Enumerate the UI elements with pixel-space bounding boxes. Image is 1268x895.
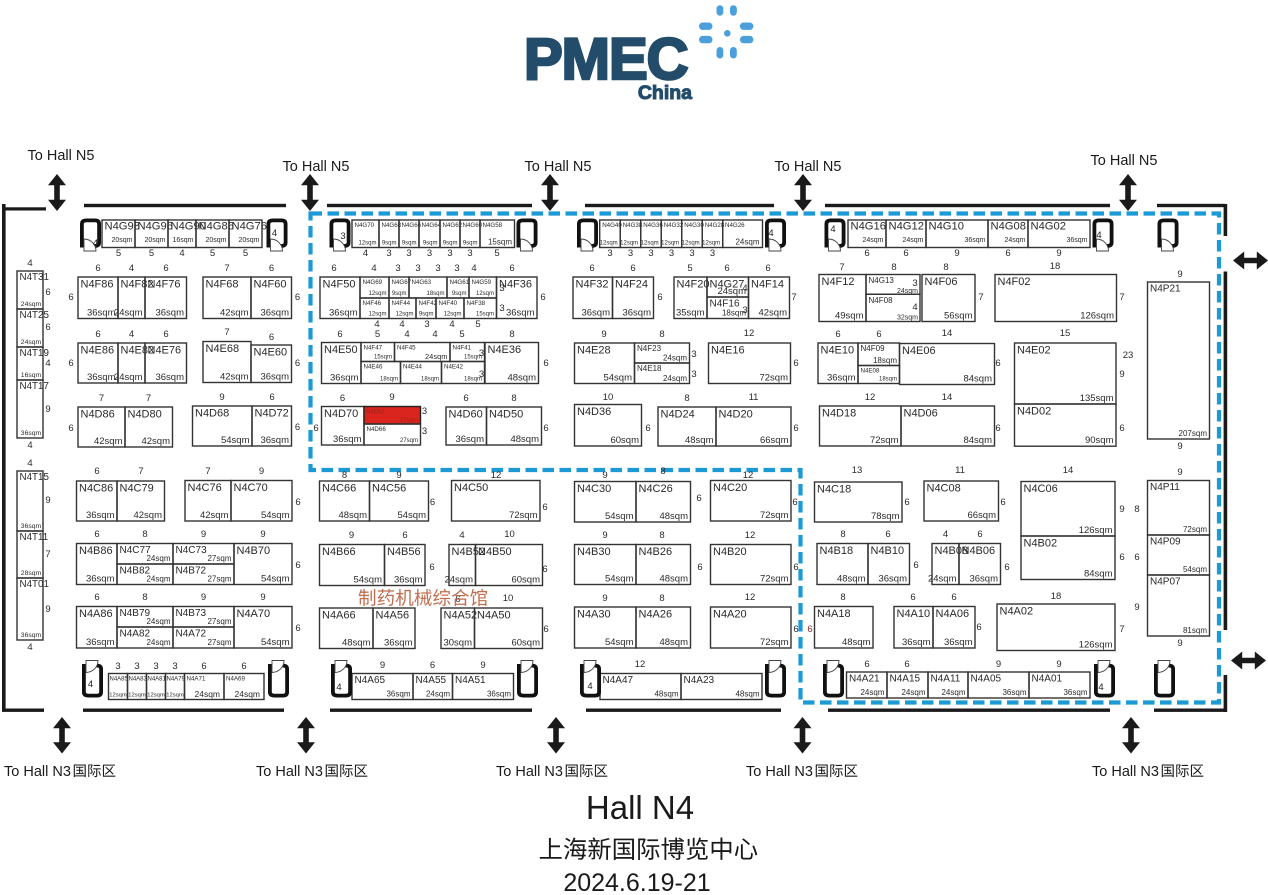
svg-text:N4E42: N4E42 <box>444 363 463 370</box>
svg-text:24sqm: 24sqm <box>862 237 883 244</box>
svg-text:4: 4 <box>272 228 277 239</box>
svg-text:12sqm: 12sqm <box>358 241 376 247</box>
svg-text:9: 9 <box>602 593 607 604</box>
svg-text:N4F08: N4F08 <box>869 296 894 305</box>
svg-text:54sqm: 54sqm <box>1183 565 1207 574</box>
svg-text:8: 8 <box>660 466 665 477</box>
svg-text:24sqm: 24sqm <box>114 372 143 383</box>
svg-text:6: 6 <box>269 332 274 343</box>
svg-text:N4D66: N4D66 <box>367 426 387 433</box>
svg-text:N4C73: N4C73 <box>176 545 208 556</box>
svg-text:N4G59: N4G59 <box>472 279 492 286</box>
svg-text:6: 6 <box>543 423 548 434</box>
svg-text:9: 9 <box>1119 369 1124 380</box>
svg-text:N4A20: N4A20 <box>713 609 747 621</box>
svg-text:27sqm: 27sqm <box>400 438 418 444</box>
svg-text:6: 6 <box>1119 423 1124 434</box>
svg-text:N4T25: N4T25 <box>20 310 50 321</box>
svg-text:24sqm: 24sqm <box>902 237 923 244</box>
svg-text:To Hall N3: To Hall N3 <box>256 764 323 780</box>
svg-text:24sqm: 24sqm <box>444 575 473 586</box>
svg-text:6: 6 <box>295 497 300 508</box>
svg-text:6: 6 <box>68 358 73 369</box>
svg-text:6: 6 <box>68 292 73 303</box>
svg-text:N4F12: N4F12 <box>822 276 855 288</box>
svg-text:N4A05: N4A05 <box>971 674 1002 685</box>
svg-text:N4B72: N4B72 <box>176 566 207 577</box>
svg-text:4: 4 <box>943 529 948 540</box>
svg-text:6: 6 <box>1004 562 1009 573</box>
svg-text:6: 6 <box>1119 552 1124 563</box>
svg-text:N4A51: N4A51 <box>455 675 486 686</box>
svg-text:12sqm: 12sqm <box>368 312 386 318</box>
svg-text:12sqm: 12sqm <box>641 241 659 247</box>
svg-text:N4F40: N4F40 <box>439 300 458 307</box>
svg-text:54sqm: 54sqm <box>605 511 634 522</box>
svg-text:54sqm: 54sqm <box>221 435 250 446</box>
svg-text:54sqm: 54sqm <box>261 510 290 521</box>
svg-text:10: 10 <box>504 529 515 540</box>
svg-text:27sqm: 27sqm <box>207 554 231 563</box>
svg-text:9sqm: 9sqm <box>402 241 417 247</box>
svg-text:N4A55: N4A55 <box>416 675 447 686</box>
svg-text:12: 12 <box>745 530 756 541</box>
svg-text:N4C08: N4C08 <box>927 483 961 495</box>
svg-text:24sqm: 24sqm <box>146 554 170 563</box>
svg-text:48sqm: 48sqm <box>659 574 688 585</box>
svg-text:3: 3 <box>172 661 177 672</box>
svg-text:28sqm: 28sqm <box>21 570 42 577</box>
svg-text:24sqm: 24sqm <box>941 688 965 697</box>
svg-text:48sqm: 48sqm <box>735 690 759 699</box>
svg-text:3: 3 <box>499 283 504 294</box>
svg-text:9: 9 <box>45 495 50 506</box>
svg-text:N4E06: N4E06 <box>902 345 936 357</box>
svg-text:5: 5 <box>494 248 499 259</box>
svg-text:72sqm: 72sqm <box>759 373 788 384</box>
svg-text:4: 4 <box>179 248 184 259</box>
svg-text:36sqm: 36sqm <box>260 308 289 319</box>
svg-text:N4C20: N4C20 <box>713 482 747 494</box>
svg-text:4: 4 <box>912 302 917 313</box>
svg-text:6: 6 <box>402 530 407 541</box>
svg-text:N4E46: N4E46 <box>364 363 383 370</box>
svg-text:9sqm: 9sqm <box>443 241 458 247</box>
svg-text:36sqm: 36sqm <box>86 510 115 521</box>
svg-text:24sqm: 24sqm <box>146 617 170 626</box>
svg-text:N4C18: N4C18 <box>817 484 851 496</box>
svg-text:7: 7 <box>1119 624 1124 635</box>
svg-text:N4E76: N4E76 <box>148 345 182 357</box>
svg-text:N4E36: N4E36 <box>488 344 522 356</box>
svg-text:9: 9 <box>349 530 354 541</box>
svg-text:12: 12 <box>865 392 876 403</box>
svg-text:12sqm: 12sqm <box>109 693 127 699</box>
svg-text:7: 7 <box>791 292 796 303</box>
svg-text:36sqm: 36sqm <box>21 430 42 437</box>
svg-text:14: 14 <box>1063 465 1074 476</box>
svg-text:4: 4 <box>1096 230 1101 241</box>
svg-text:48sqm: 48sqm <box>342 638 371 649</box>
svg-text:N4C79: N4C79 <box>120 483 154 495</box>
svg-text:N4A71: N4A71 <box>187 676 206 683</box>
svg-text:To Hall N3: To Hall N3 <box>4 764 71 780</box>
svg-text:5: 5 <box>375 329 380 340</box>
svg-text:48sqm: 48sqm <box>842 637 871 648</box>
svg-text:N4A81: N4A81 <box>148 677 167 683</box>
svg-text:84sqm: 84sqm <box>1084 569 1113 580</box>
svg-text:27sqm: 27sqm <box>207 638 231 647</box>
svg-text:N4F38: N4F38 <box>467 300 486 307</box>
svg-text:8: 8 <box>509 329 514 340</box>
svg-text:42sqm: 42sqm <box>220 308 249 319</box>
svg-text:9: 9 <box>602 530 607 541</box>
svg-text:4: 4 <box>830 224 835 235</box>
svg-text:8: 8 <box>840 529 845 540</box>
svg-text:6: 6 <box>913 560 918 571</box>
svg-text:N4A02: N4A02 <box>1000 606 1034 618</box>
svg-text:9: 9 <box>1056 659 1061 670</box>
svg-text:N4B26: N4B26 <box>639 546 673 558</box>
svg-text:49sqm: 49sqm <box>835 311 864 322</box>
svg-text:78sqm: 78sqm <box>871 511 900 522</box>
svg-text:N4G16: N4G16 <box>851 221 886 233</box>
svg-text:9: 9 <box>1177 467 1182 478</box>
svg-text:6: 6 <box>430 660 435 671</box>
svg-text:24sqm: 24sqm <box>663 354 687 363</box>
svg-text:48sqm: 48sqm <box>338 510 367 521</box>
svg-text:48sqm: 48sqm <box>659 511 688 522</box>
svg-text:6: 6 <box>429 562 434 573</box>
svg-text:2024.6.19-21: 2024.6.19-21 <box>563 869 710 895</box>
svg-text:N4D18: N4D18 <box>822 408 856 420</box>
svg-text:To Hall N3: To Hall N3 <box>1092 764 1159 780</box>
svg-text:4: 4 <box>336 682 341 693</box>
svg-text:N4C56: N4C56 <box>372 483 406 495</box>
svg-text:24sqm: 24sqm <box>735 238 759 247</box>
svg-text:6: 6 <box>976 622 981 633</box>
svg-text:N4D24: N4D24 <box>661 409 695 421</box>
svg-text:72sqm: 72sqm <box>760 637 789 648</box>
svg-text:6: 6 <box>94 466 99 477</box>
svg-text:6: 6 <box>509 263 514 274</box>
svg-text:4: 4 <box>432 329 437 340</box>
svg-text:N4F50: N4F50 <box>323 279 356 291</box>
svg-text:36sqm: 36sqm <box>1066 237 1087 244</box>
svg-text:N4B18: N4B18 <box>820 545 854 557</box>
svg-text:N4D68: N4D68 <box>195 408 229 420</box>
svg-text:N4F14: N4F14 <box>751 279 784 291</box>
svg-text:To Hall N5: To Hall N5 <box>283 159 350 175</box>
svg-text:N4A10: N4A10 <box>897 608 931 620</box>
svg-text:3: 3 <box>115 661 120 672</box>
svg-text:6: 6 <box>885 529 890 540</box>
svg-text:N4F45: N4F45 <box>397 344 416 351</box>
svg-text:N4A86: N4A86 <box>79 608 113 620</box>
svg-text:3: 3 <box>454 263 459 274</box>
svg-text:12sqm: 12sqm <box>395 312 413 318</box>
svg-text:4: 4 <box>768 228 773 239</box>
svg-text:To Hall N5: To Hall N5 <box>775 159 842 175</box>
svg-text:6: 6 <box>295 623 300 634</box>
svg-text:4: 4 <box>363 248 368 259</box>
svg-text:Hall N4: Hall N4 <box>586 789 694 826</box>
svg-text:9: 9 <box>1177 441 1182 452</box>
svg-text:6: 6 <box>793 562 798 573</box>
svg-text:N4F20: N4F20 <box>677 279 710 291</box>
svg-text:N4E60: N4E60 <box>254 347 288 359</box>
svg-text:N4A23: N4A23 <box>684 675 715 686</box>
svg-text:N4G36: N4G36 <box>643 222 663 229</box>
svg-text:7: 7 <box>978 292 983 303</box>
svg-text:42sqm: 42sqm <box>758 308 787 319</box>
svg-text:N4G63: N4G63 <box>412 279 432 286</box>
svg-text:36sqm: 36sqm <box>260 372 289 383</box>
svg-text:6: 6 <box>792 497 797 508</box>
svg-text:36sqm: 36sqm <box>487 690 511 699</box>
svg-text:6: 6 <box>765 263 770 274</box>
svg-text:6: 6 <box>864 659 869 670</box>
svg-text:36sqm: 36sqm <box>581 308 610 319</box>
svg-text:36sqm: 36sqm <box>455 434 484 445</box>
svg-text:N4G76: N4G76 <box>232 221 267 233</box>
svg-text:3: 3 <box>689 248 694 259</box>
svg-text:7: 7 <box>146 393 151 404</box>
svg-text:N4A56: N4A56 <box>376 610 410 622</box>
svg-text:N4D06: N4D06 <box>904 408 938 420</box>
svg-text:72sqm: 72sqm <box>509 510 538 521</box>
svg-text:14: 14 <box>942 392 953 403</box>
svg-text:3: 3 <box>691 369 696 380</box>
svg-text:6: 6 <box>645 423 650 434</box>
svg-text:N4D72: N4D72 <box>255 408 289 420</box>
svg-text:3: 3 <box>415 263 420 274</box>
svg-text:N4G10: N4G10 <box>929 221 964 233</box>
svg-text:11: 11 <box>749 392 759 403</box>
svg-text:6: 6 <box>313 423 318 434</box>
svg-text:5: 5 <box>116 248 121 259</box>
svg-text:6: 6 <box>995 358 1000 369</box>
svg-text:9sqm: 9sqm <box>382 241 397 247</box>
svg-text:N4A30: N4A30 <box>577 609 611 621</box>
svg-text:6: 6 <box>835 329 840 340</box>
svg-text:6: 6 <box>903 248 908 259</box>
svg-text:6: 6 <box>95 329 100 340</box>
svg-text:3: 3 <box>153 661 158 672</box>
svg-text:3: 3 <box>395 263 400 274</box>
svg-text:36sqm: 36sqm <box>964 237 985 244</box>
svg-text:6: 6 <box>864 248 869 259</box>
svg-text:N4C50: N4C50 <box>454 482 488 494</box>
svg-text:6: 6 <box>45 322 50 333</box>
svg-text:9: 9 <box>480 660 485 671</box>
svg-text:N4G26: N4G26 <box>725 222 745 229</box>
svg-text:60sqm: 60sqm <box>511 575 540 586</box>
svg-text:N4G13: N4G13 <box>869 276 895 285</box>
svg-text:15sqm: 15sqm <box>476 312 494 318</box>
svg-text:7: 7 <box>224 327 229 338</box>
svg-text:6: 6 <box>542 564 547 575</box>
svg-text:N4E28: N4E28 <box>577 345 611 357</box>
svg-text:N4F02: N4F02 <box>998 276 1031 288</box>
svg-text:N4C06: N4C06 <box>1024 483 1058 495</box>
svg-text:4: 4 <box>93 238 98 249</box>
svg-text:36sqm: 36sqm <box>21 523 42 530</box>
svg-text:72sqm: 72sqm <box>760 574 789 585</box>
svg-text:9: 9 <box>259 466 264 477</box>
svg-text:6: 6 <box>807 624 812 635</box>
svg-text:6: 6 <box>696 493 701 504</box>
svg-text:N4A79: N4A79 <box>167 677 186 683</box>
svg-text:6: 6 <box>430 497 435 508</box>
svg-text:12sqm: 12sqm <box>476 291 494 297</box>
svg-text:6: 6 <box>904 497 909 508</box>
svg-text:81sqm: 81sqm <box>1183 626 1207 635</box>
svg-text:N4F42: N4F42 <box>419 300 438 307</box>
svg-text:7: 7 <box>839 262 844 273</box>
svg-text:6: 6 <box>793 624 798 635</box>
svg-text:3: 3 <box>422 406 427 417</box>
svg-text:N4E44: N4E44 <box>403 363 422 370</box>
svg-text:48sqm: 48sqm <box>510 434 539 445</box>
svg-text:36sqm: 36sqm <box>384 638 413 649</box>
svg-text:126sqm: 126sqm <box>1079 640 1113 651</box>
svg-text:N4A06: N4A06 <box>936 608 970 620</box>
svg-text:4: 4 <box>27 440 32 451</box>
svg-text:N4T31: N4T31 <box>20 272 49 283</box>
svg-text:3: 3 <box>386 248 391 259</box>
svg-text:4: 4 <box>27 642 32 653</box>
svg-text:N4F47: N4F47 <box>364 344 383 351</box>
svg-text:7: 7 <box>99 393 104 404</box>
svg-text:N4P09: N4P09 <box>1150 537 1181 548</box>
svg-text:12sqm: 12sqm <box>368 291 386 297</box>
svg-text:9: 9 <box>396 470 401 481</box>
svg-text:42sqm: 42sqm <box>220 372 249 383</box>
svg-text:10: 10 <box>603 392 614 403</box>
svg-text:6: 6 <box>68 423 73 434</box>
svg-text:6: 6 <box>793 358 798 369</box>
svg-text:6: 6 <box>876 329 881 340</box>
svg-text:36sqm: 36sqm <box>260 435 289 446</box>
svg-text:4: 4 <box>129 329 134 340</box>
svg-text:32sqm: 32sqm <box>897 315 918 322</box>
svg-text:6: 6 <box>951 592 956 603</box>
svg-text:24sqm: 24sqm <box>21 339 42 346</box>
svg-text:N4B06: N4B06 <box>962 545 996 557</box>
svg-text:6: 6 <box>463 393 468 404</box>
svg-text:36sqm: 36sqm <box>1002 688 1026 697</box>
svg-text:N4D70: N4D70 <box>324 408 358 420</box>
svg-text:N4P07: N4P07 <box>1150 577 1181 588</box>
svg-text:6: 6 <box>657 292 662 303</box>
svg-text:12sqm: 12sqm <box>128 693 146 699</box>
svg-text:5: 5 <box>243 248 248 259</box>
svg-text:N4F46: N4F46 <box>363 300 382 307</box>
svg-text:8: 8 <box>342 470 347 481</box>
svg-text:42sqm: 42sqm <box>141 436 170 447</box>
svg-text:54sqm: 54sqm <box>353 575 382 586</box>
svg-text:6: 6 <box>543 624 548 635</box>
svg-text:12sqm: 12sqm <box>147 693 165 699</box>
svg-text:N4D60: N4D60 <box>449 409 483 421</box>
svg-text:N4G70: N4G70 <box>355 222 375 229</box>
svg-text:48sqm: 48sqm <box>659 637 688 648</box>
svg-text:12: 12 <box>743 470 754 481</box>
svg-text:7: 7 <box>45 549 50 560</box>
svg-text:6: 6 <box>630 263 635 274</box>
svg-text:24sqm: 24sqm <box>194 689 220 699</box>
svg-text:20sqm: 20sqm <box>111 237 132 244</box>
svg-text:N4B50: N4B50 <box>478 546 512 558</box>
svg-text:To Hall N5: To Hall N5 <box>28 148 95 164</box>
svg-text:42sqm: 42sqm <box>94 436 123 447</box>
svg-text:14: 14 <box>942 328 953 339</box>
svg-text:N4E02: N4E02 <box>1017 345 1051 357</box>
svg-text:36sqm: 36sqm <box>944 637 973 648</box>
svg-text:3: 3 <box>648 248 653 259</box>
svg-text:36sqm: 36sqm <box>1063 688 1087 697</box>
svg-text:23: 23 <box>1123 350 1134 361</box>
svg-text:15sqm: 15sqm <box>374 355 392 361</box>
svg-text:N4T15: N4T15 <box>20 472 50 483</box>
svg-text:3: 3 <box>406 248 411 259</box>
svg-text:30sqm: 30sqm <box>443 638 472 649</box>
svg-text:24sqm: 24sqm <box>146 638 170 647</box>
svg-text:N4A15: N4A15 <box>890 674 921 685</box>
svg-text:N4G69: N4G69 <box>363 279 383 286</box>
svg-text:20sqm: 20sqm <box>144 237 165 244</box>
svg-text:36sqm: 36sqm <box>330 373 359 384</box>
svg-text:9sqm: 9sqm <box>423 241 438 247</box>
svg-text:6: 6 <box>94 592 99 603</box>
svg-text:6: 6 <box>977 529 982 540</box>
svg-text:China: China <box>638 82 692 104</box>
svg-text:4: 4 <box>449 319 454 330</box>
svg-text:N4F09: N4F09 <box>861 344 886 353</box>
svg-text:8: 8 <box>659 530 664 541</box>
svg-text:8: 8 <box>943 262 948 273</box>
svg-text:N4G58: N4G58 <box>483 222 503 229</box>
svg-text:54sqm: 54sqm <box>605 574 634 585</box>
svg-text:6: 6 <box>910 592 915 603</box>
svg-text:9: 9 <box>45 404 50 415</box>
svg-text:3: 3 <box>628 248 633 259</box>
svg-text:N4G38: N4G38 <box>623 222 643 229</box>
svg-text:8: 8 <box>142 592 147 603</box>
svg-text:N4B86: N4B86 <box>79 545 113 557</box>
svg-text:24sqm: 24sqm <box>1004 237 1025 244</box>
svg-text:9sqm: 9sqm <box>463 241 478 247</box>
svg-text:12: 12 <box>491 470 502 481</box>
svg-text:9: 9 <box>954 248 959 259</box>
svg-text:4: 4 <box>587 681 592 692</box>
svg-text:N4F68: N4F68 <box>206 279 239 291</box>
svg-text:N4A11: N4A11 <box>931 674 961 685</box>
svg-text:N4P21: N4P21 <box>1150 284 1181 295</box>
svg-text:6: 6 <box>295 560 300 571</box>
svg-text:16sqm: 16sqm <box>172 237 193 244</box>
svg-text:N4D20: N4D20 <box>719 409 753 421</box>
svg-text:N4A52: N4A52 <box>444 610 478 622</box>
svg-text:36sqm: 36sqm <box>86 574 115 585</box>
svg-text:N4G32: N4G32 <box>664 222 684 229</box>
svg-text:6: 6 <box>540 292 545 303</box>
svg-text:4: 4 <box>129 263 134 274</box>
svg-text:6: 6 <box>542 502 547 513</box>
svg-text:9: 9 <box>1056 248 1061 259</box>
svg-text:12: 12 <box>635 659 646 670</box>
